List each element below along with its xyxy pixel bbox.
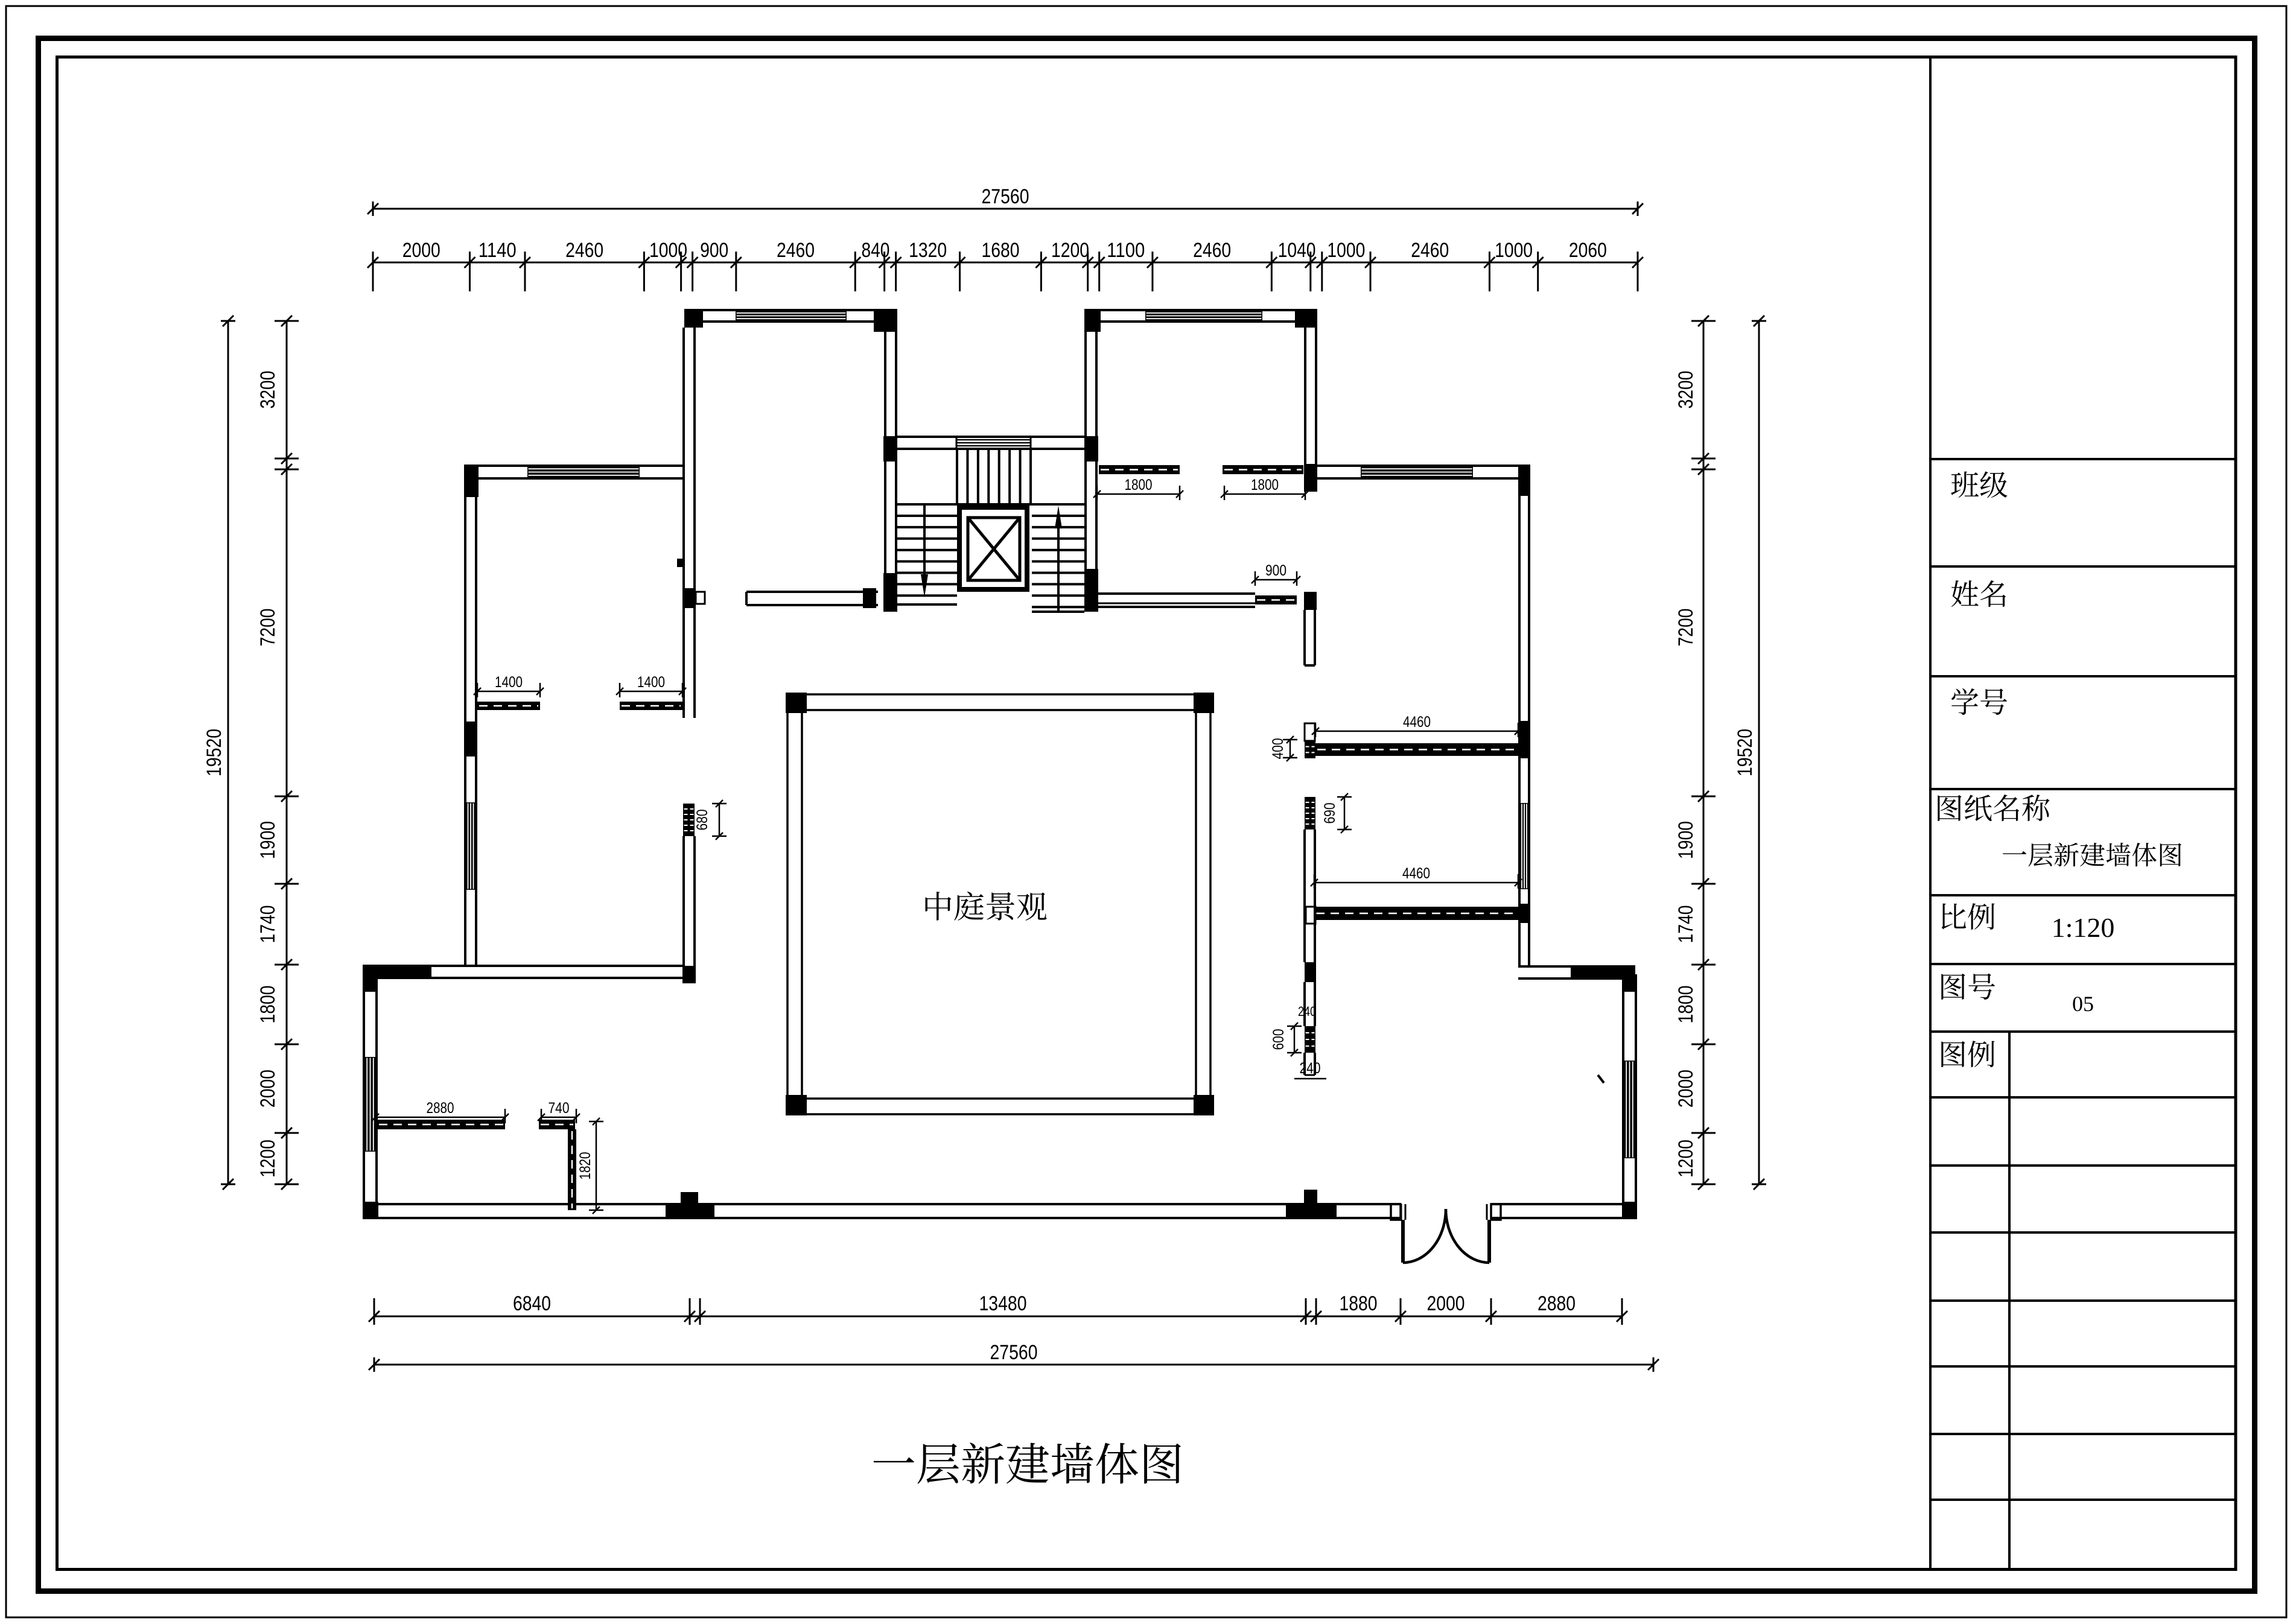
svg-text:4460: 4460 <box>1403 714 1431 731</box>
svg-text:2460: 2460 <box>1411 239 1449 262</box>
svg-text:7200: 7200 <box>256 609 279 647</box>
svg-text:19520: 19520 <box>1734 729 1757 776</box>
svg-text:1100: 1100 <box>1107 239 1145 262</box>
svg-text:1880: 1880 <box>1340 1292 1378 1315</box>
svg-text:1800: 1800 <box>1125 477 1153 493</box>
svg-text:1400: 1400 <box>637 674 665 691</box>
svg-text:1000: 1000 <box>1495 239 1533 262</box>
svg-text:6840: 6840 <box>513 1292 551 1315</box>
svg-text:400: 400 <box>1270 738 1286 760</box>
svg-text:2880: 2880 <box>427 1100 454 1117</box>
svg-text:1200: 1200 <box>1674 1140 1697 1178</box>
svg-text:600: 600 <box>1270 1029 1287 1050</box>
svg-text:1800: 1800 <box>1674 986 1697 1024</box>
svg-text:2460: 2460 <box>777 239 815 262</box>
svg-text:1320: 1320 <box>909 239 947 262</box>
svg-text:680: 680 <box>694 810 711 831</box>
svg-text:840: 840 <box>861 239 889 262</box>
svg-text:1740: 1740 <box>1674 906 1697 944</box>
svg-text:13480: 13480 <box>979 1292 1027 1315</box>
svg-text:740: 740 <box>549 1100 570 1117</box>
svg-text:2460: 2460 <box>1193 239 1231 262</box>
svg-text:1680: 1680 <box>981 239 1019 262</box>
svg-text:240: 240 <box>1298 1004 1316 1019</box>
svg-text:1140: 1140 <box>479 239 517 262</box>
svg-text:1000: 1000 <box>649 239 687 262</box>
svg-text:2000: 2000 <box>402 239 440 262</box>
svg-text:4460: 4460 <box>1402 865 1430 882</box>
svg-text:2000: 2000 <box>256 1070 279 1108</box>
svg-text:240: 240 <box>1300 1060 1321 1077</box>
svg-text:900: 900 <box>1265 562 1286 579</box>
svg-text:1:120: 1:120 <box>2052 912 2115 943</box>
svg-text:1820: 1820 <box>577 1152 594 1180</box>
svg-text:1200: 1200 <box>1051 239 1089 262</box>
svg-text:1200: 1200 <box>256 1140 279 1178</box>
svg-text:27560: 27560 <box>982 185 1029 208</box>
svg-text:1000: 1000 <box>1327 239 1365 262</box>
svg-text:1400: 1400 <box>495 674 523 691</box>
svg-text:1800: 1800 <box>256 986 279 1024</box>
svg-text:05: 05 <box>2072 992 2094 1016</box>
svg-text:2000: 2000 <box>1674 1070 1697 1108</box>
svg-text:2060: 2060 <box>1569 239 1607 262</box>
svg-text:1740: 1740 <box>256 906 279 944</box>
svg-text:690: 690 <box>1321 803 1338 824</box>
svg-text:3200: 3200 <box>256 371 279 409</box>
svg-text:7200: 7200 <box>1674 609 1697 647</box>
svg-text:2000: 2000 <box>1427 1292 1465 1315</box>
svg-text:27560: 27560 <box>990 1341 1038 1364</box>
svg-text:1900: 1900 <box>1674 821 1697 859</box>
svg-text:1900: 1900 <box>256 821 279 859</box>
svg-text:900: 900 <box>700 239 728 262</box>
svg-text:2880: 2880 <box>1538 1292 1576 1315</box>
svg-text:2460: 2460 <box>565 239 603 262</box>
svg-text:19520: 19520 <box>203 729 226 776</box>
svg-text:3200: 3200 <box>1674 371 1697 409</box>
svg-text:1040: 1040 <box>1278 239 1316 262</box>
svg-text:1800: 1800 <box>1251 477 1279 493</box>
